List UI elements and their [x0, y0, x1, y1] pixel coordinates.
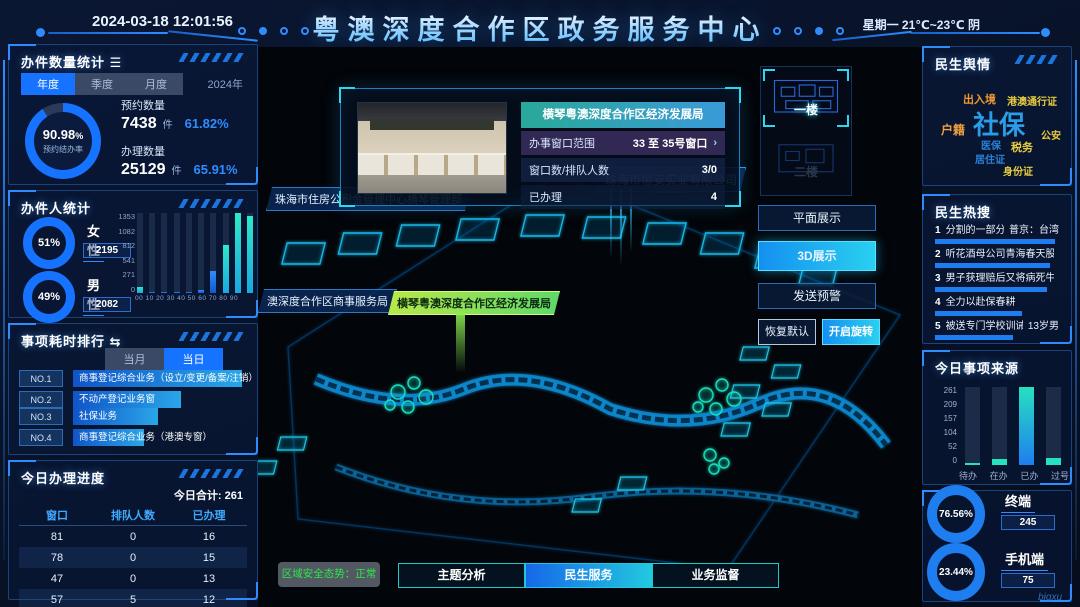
header-dot[interactable] — [259, 27, 267, 35]
cloud-tag: 公安 — [1041, 127, 1061, 142]
age-bar — [174, 292, 180, 293]
panel-title-text: 办件数量统计 — [21, 55, 105, 70]
panel-title: 民生热搜 — [935, 202, 991, 221]
header-dot[interactable] — [238, 27, 246, 35]
popup-content: 横琴粤澳深度合作区经济发展局 办事窗口范围 33 至 35号窗口 › 窗口数/排… — [521, 102, 725, 209]
floor-thumb-1[interactable]: 一楼 — [766, 72, 846, 124]
popup-row-label: 办事窗口范围 — [529, 135, 633, 151]
sort-icon[interactable]: ⇆ — [110, 334, 122, 349]
poi-label-economy-highlight[interactable]: 横琴粤澳深度合作区经济发展局 — [388, 291, 560, 315]
mobile-donut: 23.44% — [927, 543, 985, 601]
floor-label-2: 二楼 — [766, 163, 846, 180]
age-bar — [223, 245, 229, 293]
reset-default-button[interactable]: 恢复默认 — [758, 319, 816, 345]
header-dot[interactable] — [773, 27, 781, 35]
cloud-tag: 税务 — [1011, 139, 1033, 155]
cloud-tag: 户籍 — [941, 121, 965, 138]
age-bar — [198, 290, 204, 293]
age-bars — [137, 213, 253, 293]
male-percent: 49% — [38, 291, 60, 303]
reservation-donut: 90.98% 预约结办率 — [25, 103, 101, 179]
hot-search-bar — [935, 239, 1055, 244]
donut-label: 预约结办率 — [43, 144, 83, 155]
ranking-tabbar: 当月 当日 — [105, 348, 223, 370]
stat-percent: 65.91% — [194, 162, 238, 177]
source-bars — [965, 387, 1061, 465]
header-dot[interactable] — [301, 27, 309, 35]
ranking-item: NO.3 社保业务 — [19, 408, 247, 425]
ranking-item: NO.1 商事登记综合业务（设立/变更/备案/注销） — [19, 370, 247, 387]
terminal-donut: 76.56% — [927, 485, 985, 543]
hot-search-bar — [935, 335, 1013, 340]
ranking-label: 社保业务 — [79, 408, 117, 425]
table-row: 47013 — [19, 568, 247, 589]
panel-deco-slashes — [178, 332, 249, 341]
age-distribution-chart: 13531082 812541 2710 00 10 20 30 40 50 6… — [137, 213, 253, 309]
male-count: 2082 — [83, 297, 131, 312]
building-info-popup: 横琴粤澳深度合作区经济发展局 办事窗口范围 33 至 35号窗口 › 窗口数/排… — [340, 88, 740, 206]
header-dot[interactable] — [794, 27, 802, 35]
security-status-badge: 区域安全态势：正常 — [278, 562, 380, 587]
table-header-row: 窗口 排队人数 已办理 — [19, 505, 247, 526]
panel-deco-slashes — [178, 199, 249, 208]
col-done: 已办理 — [171, 507, 247, 523]
source-bar — [1046, 458, 1061, 465]
terminal-row-1: 76.56% 终端 245 — [923, 485, 1073, 543]
popup-corner — [725, 191, 741, 207]
header-weather: 星期一 21℃~23℃ 阴 — [863, 16, 980, 33]
source-bar — [965, 463, 980, 465]
ranking-item: NO.2 不动产登记业务窗 — [19, 391, 247, 408]
dashboard-screen: 2024-03-18 12:01:56 粤澳深度合作区政务服务中心 星期一 21… — [0, 0, 1080, 607]
age-bar — [247, 216, 253, 293]
photo-counter — [358, 153, 506, 176]
tab-people-service[interactable]: 民生服务 — [525, 563, 652, 588]
service-hall-photo — [357, 102, 507, 194]
hot-search-bar — [935, 287, 1047, 292]
mobile-percent: 23.44% — [939, 567, 973, 578]
tab-business-monitor[interactable]: 业务监督 — [652, 563, 779, 588]
table-row: 57512 — [19, 589, 247, 607]
panel-title: 办件数量统计 ☰ — [21, 52, 122, 71]
cloud-tag: 医保 — [981, 137, 1001, 152]
header-dot[interactable] — [280, 27, 288, 35]
hot-search-bar — [935, 263, 1050, 268]
popup-row-queue: 窗口数/排队人数 3/0 — [521, 158, 725, 182]
ranking-label: 商事登记综合业务（设立/变更/备案/注销） — [79, 370, 258, 387]
panel-deco-slashes — [178, 469, 249, 478]
hot-search-item[interactable]: 1 分割的一部分 普京：台湾 — [935, 221, 1059, 248]
source-x-labels: 待办在办 已办过号 — [959, 469, 1069, 482]
panel-title: 今日事项来源 — [935, 358, 1019, 377]
photo-sign-band — [370, 119, 494, 130]
popup-row-value: 3/0 — [702, 164, 717, 176]
terminal-count: 245 — [1001, 515, 1055, 530]
header-dots-right — [773, 27, 844, 35]
panel-source-chart: 今日事项来源 261209 157104 520 待办在办 已办过号 — [922, 350, 1072, 485]
hot-search-item[interactable]: 3 男子获理赔后又将病死牛挖出来卖 — [935, 269, 1059, 296]
tab-quarter[interactable]: 季度 — [75, 73, 129, 95]
frame-left — [3, 60, 5, 560]
popup-corner — [725, 87, 741, 103]
photo-floor — [358, 175, 506, 193]
poi-highlight-beam — [456, 311, 465, 373]
send-alert-button[interactable]: 发送预警 — [758, 283, 876, 309]
stat-percent: 61.82% — [185, 116, 229, 131]
floor-thumb-2[interactable]: 二楼 — [766, 134, 846, 186]
stat-unit: 件 — [172, 162, 182, 177]
age-bar — [161, 292, 167, 293]
donut-hole: 90.98% 预约结办率 — [34, 112, 92, 170]
popup-row-label: 窗口数/排队人数 — [529, 162, 702, 178]
rank-badge: NO.4 — [19, 429, 63, 446]
tab-month[interactable]: 月度 — [129, 73, 183, 95]
header-dot[interactable] — [836, 27, 844, 35]
floor-label-1: 一楼 — [766, 101, 846, 118]
popup-row-done: 已办理 4 — [521, 185, 725, 209]
panel-title-text: 办件人统计 — [21, 201, 91, 216]
popup-row-window-range[interactable]: 办事窗口范围 33 至 35号窗口 › — [521, 131, 725, 155]
popup-row-label: 已办理 — [529, 189, 711, 205]
stat-handled: 办理数量 25129 件 65.91% — [121, 143, 251, 179]
panel-title-text: 民生舆情 — [935, 57, 991, 72]
col-window: 窗口 — [19, 507, 95, 523]
floor-selector: 一楼 二楼 — [760, 66, 852, 196]
today-total: 今日合计: 261 — [174, 487, 243, 503]
volume-tabbar: 年度 季度 月度 — [21, 73, 183, 95]
stat-value: 7438 — [121, 115, 157, 133]
source-bar — [992, 459, 1007, 465]
panel-title-text: 民生热搜 — [935, 205, 991, 220]
popup-corner — [339, 191, 355, 207]
popup-row-value: 4 — [711, 191, 717, 203]
header-dots-left — [238, 27, 309, 35]
mobile-label: 手机端 — [1001, 549, 1048, 571]
table-row: 78015 — [19, 547, 247, 568]
panel-title-text: 事项耗时排行 — [21, 334, 105, 349]
female-percent: 51% — [38, 237, 60, 249]
stat-value: 25129 — [121, 161, 166, 179]
ranking-label: 商事登记综合业务（港澳专窗） — [79, 429, 212, 446]
stat-reserved: 预约数量 7438 件 61.82% — [121, 97, 251, 133]
tab-current-month[interactable]: 当月 — [105, 348, 164, 370]
donut-value: 90.98% — [43, 127, 84, 142]
panel-sentiment-cloud: 民生舆情 出入境 港澳通行证 社保 户籍 公安 医保 税务 居住证 身份证 — [922, 46, 1072, 186]
panel-volume-stats: 办件数量统计 ☰ 年度 季度 月度 2024年 90.98% 预约结办率 预约数… — [8, 44, 258, 185]
panel-title: 今日办理进度 — [21, 468, 105, 487]
hot-search-item[interactable]: 4 全力以赴保春耕 — [935, 293, 1059, 320]
panel-terminal-stats: 76.56% 终端 245 23.44% 手机端 75 — [922, 490, 1072, 602]
mobile-count: 75 — [1001, 573, 1055, 588]
rank-badge: NO.1 — [19, 370, 63, 387]
panel-title-text: 今日办理进度 — [21, 471, 105, 486]
popup-title: 横琴粤澳深度合作区经济发展局 — [521, 102, 725, 128]
tab-theme-analysis[interactable]: 主题分析 — [398, 563, 525, 588]
panel-today-progress: 今日办理进度 今日合计: 261 窗口 排队人数 已办理 81016 78015… — [8, 460, 258, 600]
3d-view-button[interactable]: 3D展示 — [758, 241, 876, 271]
age-bar — [137, 287, 143, 293]
stat-unit: 件 — [163, 116, 173, 131]
year-label: 2024年 — [208, 76, 243, 92]
3d-map[interactable]: 珠海市住房公积金管理中心横琴管理部 澳深度合作区商事服务局 公司 珠海市恒安实业… — [258, 47, 922, 607]
panel-title-text: 今日事项来源 — [935, 361, 1019, 376]
age-bar — [186, 292, 192, 293]
age-bar — [149, 292, 155, 293]
panel-duration-ranking: 事项耗时排行 ⇆ 当月 当日 NO.1 商事登记综合业务（设立/变更/备案/注销… — [8, 323, 258, 455]
ranking-label: 不动产登记业务窗 — [79, 391, 155, 408]
hot-search-item[interactable]: 5 被送专门学校训诫 13岁男 — [935, 317, 1059, 344]
rank-badge: NO.3 — [19, 408, 63, 425]
frame-right — [1075, 60, 1077, 560]
chevron-right-icon[interactable]: › — [713, 137, 717, 149]
rank-badge: NO.2 — [19, 391, 63, 408]
tab-current-day[interactable]: 当日 — [164, 348, 223, 370]
age-bar — [210, 271, 216, 293]
panel-people-stats: 办件人统计 51% 女性 2195 49% 男性 2082 13531082 8… — [8, 190, 258, 318]
source-bar — [1019, 387, 1034, 465]
progress-table: 窗口 排队人数 已办理 81016 78015 47013 57512 — [19, 505, 247, 607]
popup-row-value: 33 至 35号窗口 — [633, 135, 708, 151]
age-x-labels: 00 10 20 30 40 50 60 70 80 90 — [135, 295, 257, 302]
terminal-percent: 76.56% — [939, 509, 973, 520]
watermark: bigxu — [1038, 592, 1062, 603]
stat-label: 预约数量 — [121, 97, 251, 113]
start-rotate-button[interactable]: 开启旋转 — [822, 319, 880, 345]
hot-search-item[interactable]: 2 听花酒母公司青海春天股价跌停 — [935, 245, 1059, 272]
table-row: 81016 — [19, 526, 247, 547]
poi-label-commerce[interactable]: 澳深度合作区商事服务局 — [258, 289, 397, 313]
male-donut: 49% — [23, 271, 75, 323]
popup-corner — [339, 87, 355, 103]
menu-icon[interactable]: ☰ — [110, 55, 123, 70]
plane-view-button[interactable]: 平面展示 — [758, 205, 876, 231]
source-y-ticks: 261209 157104 520 — [933, 387, 957, 465]
panel-deco-slashes — [1014, 55, 1063, 64]
hot-search-bar — [935, 311, 1022, 316]
header-dot[interactable] — [815, 27, 823, 35]
age-y-ticks: 13531082 812541 2710 — [107, 213, 135, 293]
terminal-label: 终端 — [1001, 491, 1035, 513]
panel-deco-slashes — [178, 53, 249, 62]
age-bar — [235, 213, 241, 293]
panel-hot-search: 民生热搜 1 分割的一部分 普京：台湾 2 听花酒母公司青海春天股价跌停 3 男… — [922, 194, 1072, 344]
cloud-tag: 居住证 — [975, 151, 1005, 166]
panel-title: 办件人统计 — [21, 198, 91, 217]
ranking-item: NO.4 商事登记综合业务（港澳专窗） — [19, 429, 247, 446]
stat-label: 办理数量 — [121, 143, 251, 159]
cloud-tag: 身份证 — [1003, 163, 1033, 178]
panel-title: 民生舆情 — [935, 54, 991, 73]
tab-year[interactable]: 年度 — [21, 73, 75, 95]
col-queue: 排队人数 — [95, 507, 171, 523]
female-donut: 51% — [23, 217, 75, 269]
